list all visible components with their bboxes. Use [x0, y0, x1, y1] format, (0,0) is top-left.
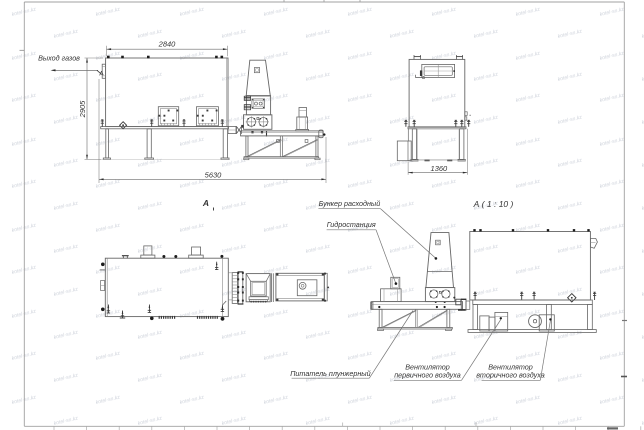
svg-text:вторичного воздуха: вторичного воздуха	[476, 371, 544, 380]
svg-text:А: А	[202, 198, 209, 208]
svg-text:Питатель плунжерный: Питатель плунжерный	[290, 369, 370, 378]
svg-text:А ( 1 : 10 ): А ( 1 : 10 )	[473, 199, 514, 209]
svg-text:Гидростанция: Гидростанция	[327, 220, 376, 229]
svg-text:первичного воздуха: первичного воздуха	[394, 371, 461, 380]
svg-text:Выход газов: Выход газов	[38, 53, 80, 62]
svg-text:2840: 2840	[158, 40, 177, 49]
svg-text:2905: 2905	[78, 100, 87, 119]
svg-text:5630: 5630	[205, 171, 223, 180]
svg-text:1360: 1360	[431, 164, 449, 173]
svg-text:Бункер расходный: Бункер расходный	[319, 199, 381, 208]
